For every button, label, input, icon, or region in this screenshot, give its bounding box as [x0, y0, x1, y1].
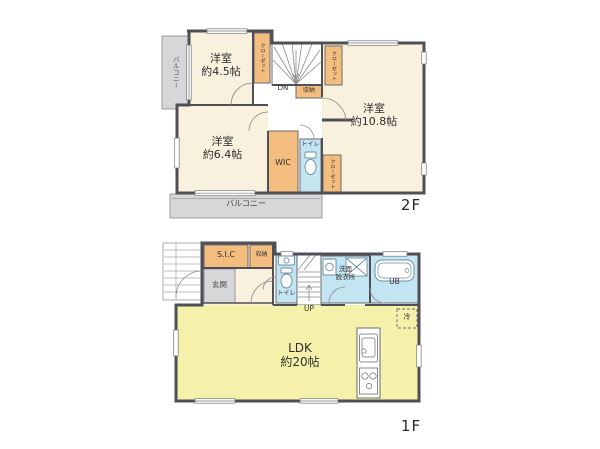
toilet-icon-2f	[305, 152, 316, 175]
floor1-plan	[163, 243, 421, 403]
ldk-area	[176, 305, 419, 401]
washbasin-icon	[323, 259, 336, 275]
washer-pan-icon	[346, 258, 367, 276]
storage-1f-area	[250, 245, 273, 268]
floor2-plan	[162, 29, 426, 218]
genkan-area	[204, 269, 235, 303]
toilet-icon-1f	[279, 256, 295, 288]
sic-area	[204, 245, 248, 268]
floor-plan-canvas: 洋室 約4.5帖 洋室 約6.4帖 洋室 約10.8帖 WIC トイレ クローゼ…	[0, 0, 600, 449]
kitchen-counter	[357, 328, 380, 398]
storage-2f-area	[296, 85, 322, 98]
room-4-5-area	[189, 31, 253, 105]
stairs-1f	[297, 254, 321, 305]
closet-left-area	[254, 33, 270, 83]
wic-area	[268, 131, 298, 193]
stairs-2f	[272, 43, 322, 85]
floorplan-drawing	[0, 0, 600, 449]
closet-right-top-area	[325, 46, 342, 85]
balcony-bottom-area	[170, 194, 322, 218]
bathtub-icon	[375, 260, 414, 281]
balcony-side-area	[162, 36, 188, 109]
closet-right-bottom-area	[323, 155, 341, 193]
